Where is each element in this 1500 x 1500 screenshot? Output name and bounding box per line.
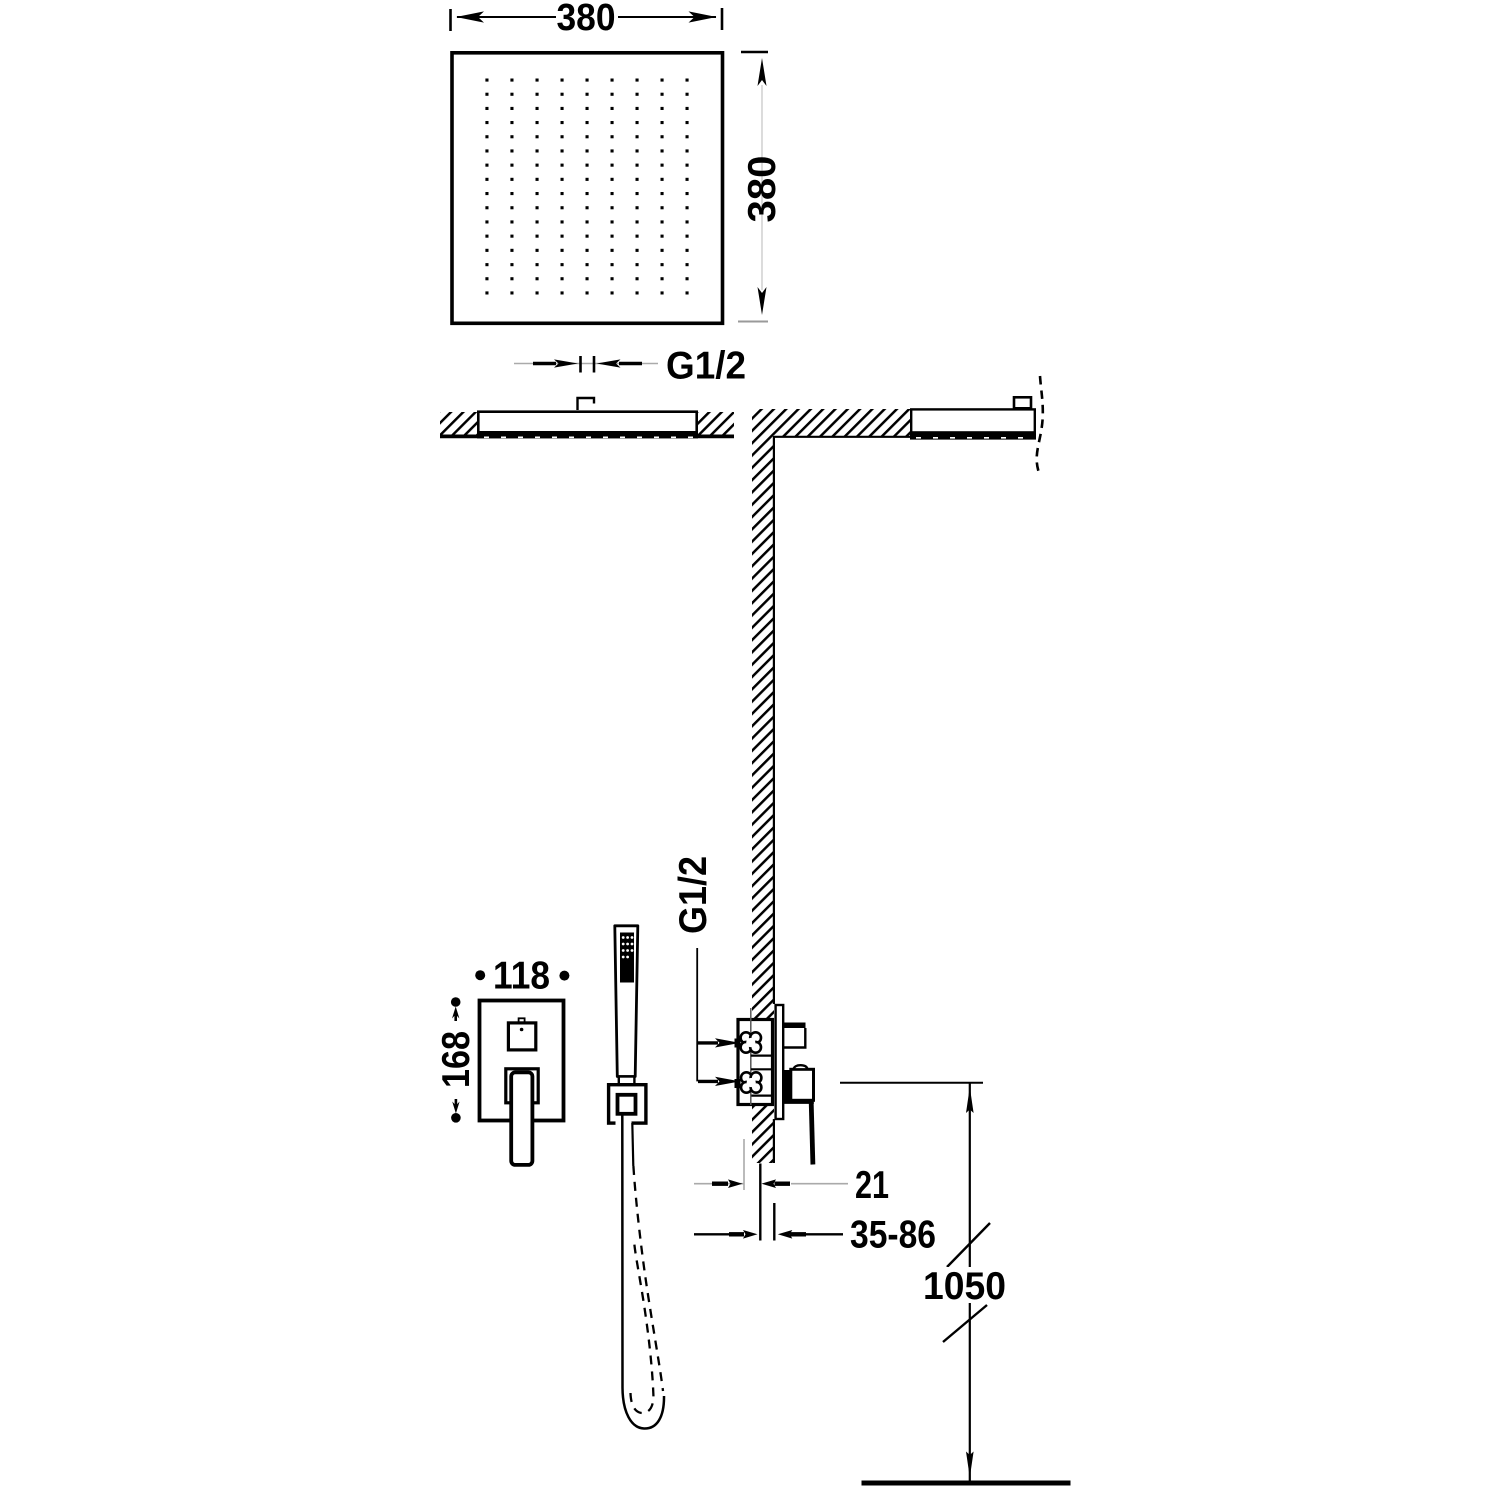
svg-text:35-86: 35-86	[850, 1214, 936, 1257]
svg-text:168: 168	[435, 1031, 478, 1088]
svg-text:380: 380	[557, 0, 616, 39]
svg-text:G1/2: G1/2	[666, 345, 746, 388]
svg-text:118: 118	[493, 955, 550, 998]
svg-text:380: 380	[741, 156, 784, 223]
svg-text:1050: 1050	[923, 1265, 1006, 1308]
svg-text:21: 21	[855, 1164, 889, 1207]
svg-text:G1/2: G1/2	[672, 856, 715, 934]
